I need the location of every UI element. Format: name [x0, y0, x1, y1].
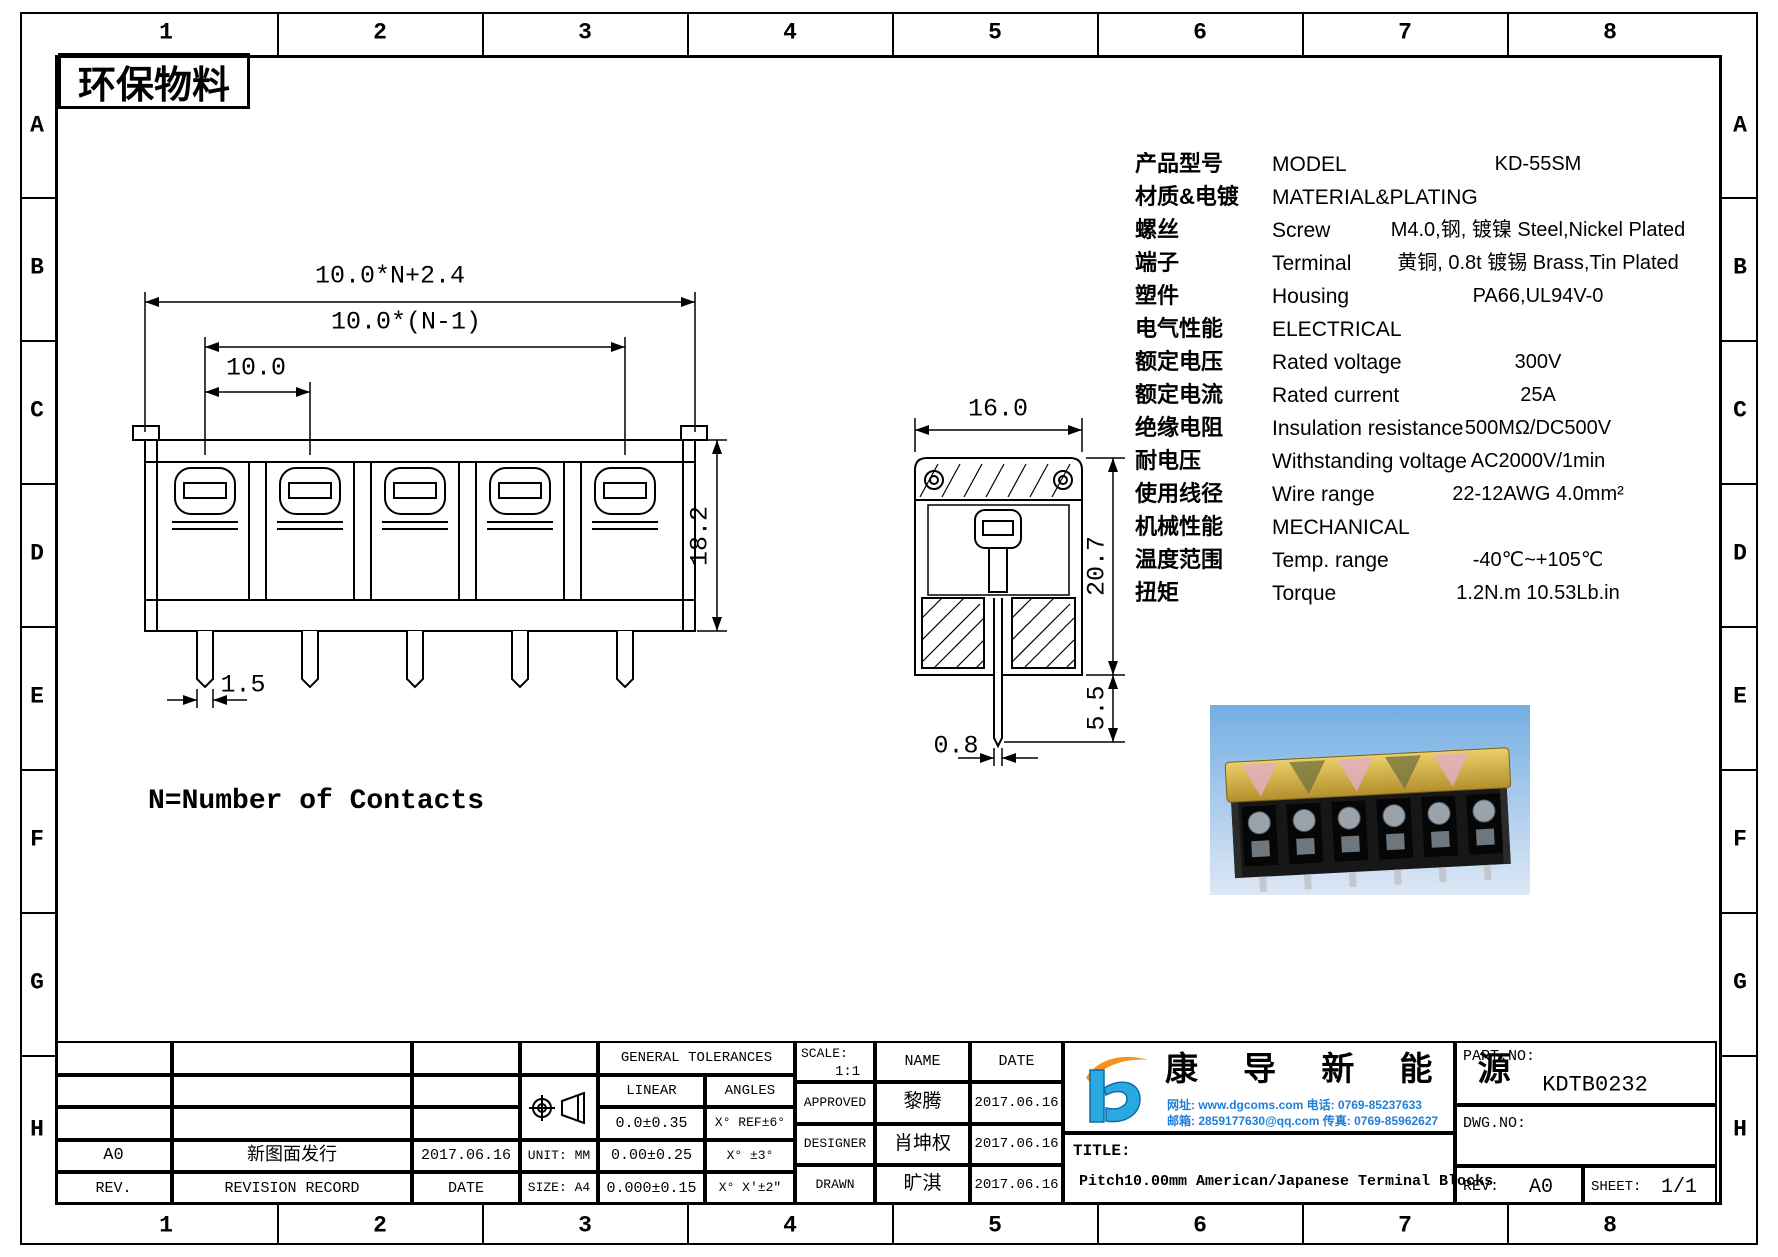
spec-label-cn: 机械性能	[1135, 515, 1223, 539]
spec-value: 300V	[1362, 351, 1714, 373]
revision-cell	[55, 1107, 172, 1140]
title-label: TITLE:	[1073, 1142, 1131, 1160]
revision-cell	[172, 1107, 412, 1140]
side-view-dim-pin-length: 5.5	[1085, 685, 1110, 730]
tolerances-linear-header: LINEAR	[598, 1075, 705, 1107]
spec-value: -40℃~+105℃	[1362, 549, 1714, 571]
spec-value: 25A	[1362, 384, 1714, 406]
spec-value: PA66,UL94V-0	[1362, 285, 1714, 307]
spec-value: 1.2N.m 10.53Lb.in	[1362, 582, 1714, 604]
approval-name: 肖坤权	[875, 1124, 970, 1165]
company-logo-icon	[1082, 1052, 1152, 1126]
spec-label-cn: 材质&电镀	[1135, 185, 1239, 209]
spec-label-en: MECHANICAL	[1272, 516, 1410, 539]
scale-value: 1:1	[835, 1064, 860, 1080]
sheet-label: SHEET:	[1591, 1179, 1641, 1195]
spec-label-en: MATERIAL&PLATING	[1272, 186, 1478, 209]
scale-label: SCALE:	[801, 1047, 848, 1062]
dwg-no-label: DWG.NO:	[1463, 1115, 1526, 1132]
dwg-no-cell: DWG.NO:	[1455, 1105, 1717, 1166]
tolerances-angles-header: ANGLES	[705, 1075, 795, 1107]
side-view-dim-width: 16.0	[968, 397, 1028, 422]
spec-value: 500MΩ/DC500V	[1362, 417, 1714, 439]
revision-header-record: REVISION RECORD	[172, 1172, 412, 1205]
approval-name: 旷淇	[875, 1165, 970, 1205]
part-no-label: PART.NO:	[1463, 1048, 1535, 1065]
spec-label-cn: 塑件	[1135, 284, 1179, 308]
company-cell: 康 导 新 能 源 网址: www.dgcoms.com 电话: 0769-85…	[1063, 1041, 1455, 1133]
spec-value: 22-12AWG 4.0mm²	[1362, 483, 1714, 505]
spec-label-c n: 扭矩	[1135, 581, 1179, 605]
revision-cell	[412, 1041, 520, 1075]
rev-value: A0	[1529, 1176, 1553, 1199]
spec-label-en: ELECTRICAL	[1272, 318, 1402, 341]
tolerance-linear-value: 0.0±0.35	[598, 1107, 705, 1140]
approval-date: 2017.06.16	[970, 1165, 1063, 1205]
front-view-dim-span: 10.0*(N-1)	[331, 310, 481, 335]
third-angle-projection-icon	[528, 1087, 590, 1129]
spec-label-cn: 使用线径	[1135, 482, 1223, 506]
scale-cell: SCALE: 1:1	[795, 1041, 875, 1082]
name-header-cell: NAME	[875, 1041, 970, 1082]
revision-header-date: DATE	[412, 1172, 520, 1205]
spec-label-en: Torque	[1272, 582, 1336, 605]
approval-role: APPROVED	[795, 1082, 875, 1124]
side-view-dim-pin-thickness: 0.8	[933, 734, 978, 759]
tolerance-angle-value: X° X'±2"	[705, 1172, 795, 1205]
front-view-dim-pitch: 10.0	[226, 356, 286, 381]
rev-cell: REV: A0	[1455, 1166, 1583, 1205]
spec-label-en: Wire range	[1272, 483, 1375, 506]
front-view-dim-height: 18.2	[688, 506, 713, 566]
drawing-sheet: 1 2 3 4 5 6 7 8 1 2 3 4 5 6 7 8 A B C D …	[0, 0, 1778, 1257]
sheet-cell: SHEET: 1/1	[1583, 1166, 1717, 1205]
revision-cell	[172, 1041, 412, 1075]
projection-symbol-cell	[520, 1075, 598, 1140]
tolerance-angle-value: X° ±3°	[705, 1140, 795, 1172]
product-photo	[1210, 705, 1530, 895]
spec-label-cn: 绝缘电阻	[1135, 416, 1223, 440]
front-view-linework	[133, 426, 707, 687]
approval-date: 2017.06.16	[970, 1124, 1063, 1165]
approval-name: 黎腾	[875, 1082, 970, 1124]
revision-rev: A0	[55, 1140, 172, 1172]
spec-label-cn: 额定电压	[1135, 350, 1223, 374]
front-view-dim-overall: 10.0*N+2.4	[315, 264, 465, 289]
front-view-dim-pin-width: 1.5	[220, 673, 265, 698]
contacts-note: N=Number of Contacts	[148, 786, 484, 817]
spec-value: M4.0,钢, 镀镍 Steel,Nickel Plated	[1362, 219, 1714, 241]
unit-size-empty-cell	[520, 1041, 598, 1075]
approval-role: DESIGNER	[795, 1124, 875, 1165]
title-cell: TITLE: Pitch10.00mm American/Japanese Te…	[1063, 1133, 1455, 1205]
spec-label-en: Terminal	[1272, 252, 1351, 275]
spec-label-cn: 额定电流	[1135, 383, 1223, 407]
spec-value: 黄铜, 0.8t 镀锡 Brass,Tin Plated	[1362, 252, 1714, 274]
spec-value: KD-55SM	[1362, 153, 1714, 175]
rev-label: REV:	[1463, 1178, 1499, 1195]
approval-role: DRAWN	[795, 1165, 875, 1205]
spec-label-cn: 耐电压	[1135, 449, 1201, 473]
revision-cell	[55, 1041, 172, 1075]
side-view-linework	[915, 458, 1082, 746]
revision-header-rev: REV.	[55, 1172, 172, 1205]
date-header-cell: DATE	[970, 1041, 1063, 1082]
sheet-value: 1/1	[1661, 1176, 1697, 1199]
revision-record: 新图面发行	[172, 1140, 412, 1172]
revision-cell	[55, 1075, 172, 1107]
tolerance-linear-value: 0.00±0.25	[598, 1140, 705, 1172]
tolerances-title: GENERAL TOLERANCES	[598, 1041, 795, 1075]
revision-cell	[412, 1107, 520, 1140]
unit-cell: UNIT: MM	[520, 1140, 598, 1172]
revision-cell	[412, 1075, 520, 1107]
revision-date: 2017.06.16	[412, 1140, 520, 1172]
spec-label-en: Housing	[1272, 285, 1349, 308]
spec-label-en: MODEL	[1272, 153, 1347, 176]
tolerance-angle-value: X° REF±6°	[705, 1107, 795, 1140]
spec-label-cn: 产品型号	[1135, 152, 1223, 176]
spec-label-cn: 温度范围	[1135, 548, 1223, 572]
part-no-value: KDTB0232	[1542, 1072, 1648, 1097]
approval-date: 2017.06.16	[970, 1082, 1063, 1124]
company-contact-line2: 邮箱: 2859177630@qq.com 传真: 0769-85962627	[1167, 1115, 1438, 1129]
spec-label-en: Screw	[1272, 219, 1330, 242]
tolerance-linear-value: 0.000±0.15	[598, 1172, 705, 1205]
spec-label-cn: 螺丝	[1135, 218, 1179, 242]
side-view-dim-height: 20.7	[1085, 536, 1110, 596]
part-no-cell: PART.NO: KDTB0232	[1455, 1041, 1717, 1105]
spec-label-cn: 端子	[1135, 251, 1179, 275]
spec-label-cn: 电气性能	[1135, 317, 1223, 341]
company-contact-line1: 网址: www.dgcoms.com 电话: 0769-85237633	[1167, 1099, 1422, 1113]
revision-cell	[172, 1075, 412, 1107]
spec-value: AC2000V/1min	[1362, 450, 1714, 472]
size-cell: SIZE: A4	[520, 1172, 598, 1205]
drawing-title: Pitch10.00mm American/Japanese Terminal …	[1079, 1173, 1493, 1190]
